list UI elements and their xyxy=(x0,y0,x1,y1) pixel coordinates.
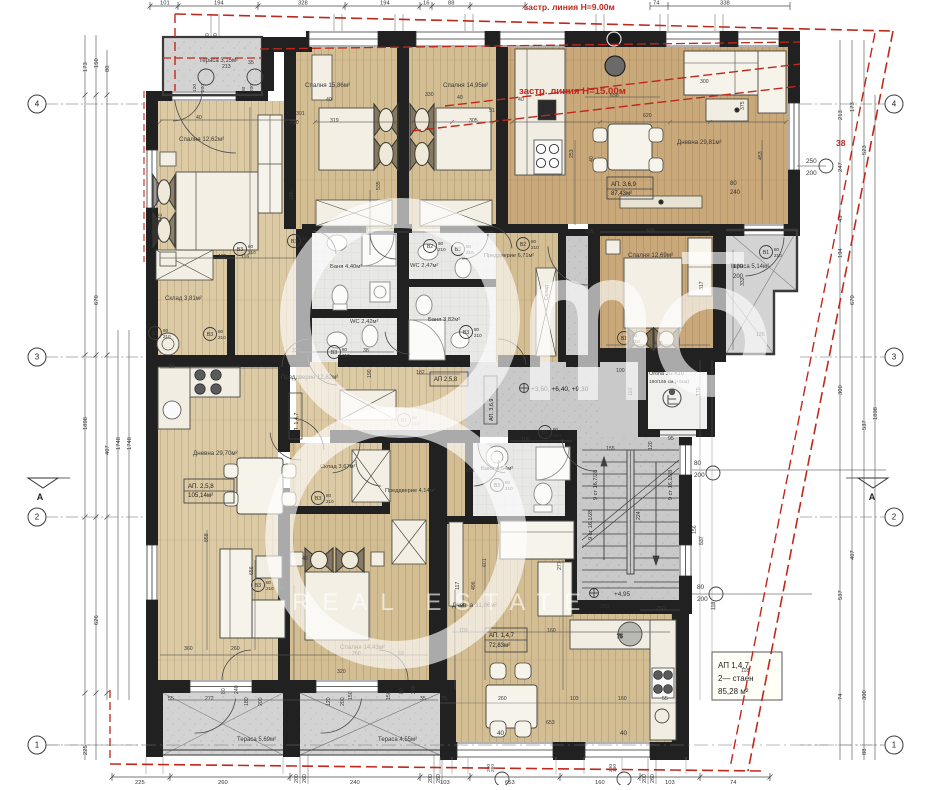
svg-text:4: 4 xyxy=(35,100,40,109)
svg-text:180: 180 xyxy=(244,697,250,706)
svg-text:51: 51 xyxy=(489,108,495,114)
svg-text:150: 150 xyxy=(94,58,100,68)
svg-text:80: 80 xyxy=(697,584,705,591)
svg-text:1: 1 xyxy=(35,741,40,750)
svg-text:35: 35 xyxy=(248,60,254,66)
svg-text:210: 210 xyxy=(474,333,482,338)
svg-text:80: 80 xyxy=(730,181,737,187)
svg-text:1898: 1898 xyxy=(873,407,879,420)
svg-text:Тераса 5,69м²: Тераса 5,69м² xyxy=(237,737,276,743)
svg-text:200: 200 xyxy=(694,472,705,479)
svg-text:40: 40 xyxy=(620,730,628,737)
svg-text:застр. линия Н=9.00м: застр. линия Н=9.00м xyxy=(524,2,615,12)
svg-text:95: 95 xyxy=(668,436,674,442)
svg-text:В1: В1 xyxy=(542,430,548,436)
svg-text:200: 200 xyxy=(258,697,264,706)
svg-text:150: 150 xyxy=(386,691,392,700)
svg-text:Тераса 5,14м²: Тераса 5,14м² xyxy=(730,264,769,270)
svg-text:260: 260 xyxy=(302,774,308,783)
svg-text:160: 160 xyxy=(595,780,605,785)
svg-text:200: 200 xyxy=(249,84,255,92)
svg-text:210: 210 xyxy=(531,245,539,250)
svg-text:+4,95: +4,95 xyxy=(614,591,631,598)
svg-text:WC 2,47м²: WC 2,47м² xyxy=(410,263,439,269)
svg-text:195: 195 xyxy=(585,229,594,235)
svg-text:75: 75 xyxy=(617,634,623,640)
svg-text:REAL ESTATE: REAL ESTATE xyxy=(292,589,593,616)
svg-text:80: 80 xyxy=(399,688,405,694)
svg-text:240: 240 xyxy=(730,190,741,196)
svg-text:300: 300 xyxy=(838,385,844,395)
svg-text:537: 537 xyxy=(699,536,705,545)
svg-text:80: 80 xyxy=(163,328,169,333)
svg-text:173: 173 xyxy=(83,62,89,72)
svg-text:80: 80 xyxy=(342,347,348,352)
svg-text:Тераса 3,15м²: Тераса 3,15м² xyxy=(199,58,238,64)
svg-text:85,28 м²: 85,28 м² xyxy=(718,687,749,696)
svg-text:2: 2 xyxy=(35,513,40,522)
svg-text:3: 3 xyxy=(35,353,40,362)
svg-text:Спалня 14,95м²: Спалня 14,95м² xyxy=(443,82,488,89)
svg-text:277: 277 xyxy=(557,561,563,570)
svg-text:260: 260 xyxy=(498,696,507,702)
svg-text:Дневна 29,70м²: Дневна 29,70м² xyxy=(193,450,238,457)
svg-text:В3: В3 xyxy=(331,350,337,356)
svg-text:301: 301 xyxy=(296,111,305,117)
svg-text:200: 200 xyxy=(200,84,206,92)
svg-text:240: 240 xyxy=(234,685,240,694)
svg-text:80: 80 xyxy=(326,493,332,498)
svg-text:В3: В3 xyxy=(255,583,261,589)
svg-text:155: 155 xyxy=(606,446,615,452)
svg-text:225: 225 xyxy=(135,780,145,785)
svg-text:160: 160 xyxy=(547,628,556,634)
svg-text:453: 453 xyxy=(758,151,764,160)
svg-text:9 ст 16,1/28: 9 ст 16,1/28 xyxy=(668,470,674,500)
svg-text:88: 88 xyxy=(448,1,454,7)
svg-text:200: 200 xyxy=(697,596,708,603)
svg-text:105,14м²: 105,14м² xyxy=(188,492,213,499)
svg-text:305: 305 xyxy=(469,118,478,124)
svg-text:АП. 1,4,7: АП. 1,4,7 xyxy=(489,633,515,639)
svg-text:338: 338 xyxy=(720,1,730,7)
svg-text:407: 407 xyxy=(850,550,856,560)
svg-text:101: 101 xyxy=(160,1,170,7)
svg-text:80: 80 xyxy=(169,364,175,370)
svg-text:210: 210 xyxy=(266,586,274,591)
svg-text:АП. 3,6,9: АП. 3,6,9 xyxy=(611,182,637,188)
svg-text:523: 523 xyxy=(862,145,868,155)
svg-text:Спалня 12,62м²: Спалня 12,62м² xyxy=(179,136,224,143)
svg-text:210: 210 xyxy=(342,353,350,358)
svg-text:260: 260 xyxy=(218,780,228,785)
svg-text:80: 80 xyxy=(531,239,537,244)
svg-text:120: 120 xyxy=(326,697,332,706)
svg-text:272: 272 xyxy=(205,696,214,702)
svg-text:Преддверие 4,14м²: Преддверие 4,14м² xyxy=(385,488,435,494)
svg-text:200: 200 xyxy=(428,774,434,783)
svg-text:213: 213 xyxy=(222,64,231,70)
svg-text:210: 210 xyxy=(326,499,334,504)
svg-text:35: 35 xyxy=(420,696,426,702)
svg-text:330: 330 xyxy=(425,92,434,98)
svg-text:16: 16 xyxy=(423,1,429,7)
svg-text:Баня 3,82м²: Баня 3,82м² xyxy=(428,317,460,323)
svg-text:116: 116 xyxy=(241,254,249,260)
svg-text:Дневна 29,81м²: Дневна 29,81м² xyxy=(677,139,722,146)
svg-text:74: 74 xyxy=(838,693,844,700)
svg-text:74: 74 xyxy=(730,780,737,785)
svg-text:653: 653 xyxy=(546,720,555,726)
svg-text:1748: 1748 xyxy=(116,437,122,450)
svg-text:40: 40 xyxy=(326,97,332,103)
svg-text:194: 194 xyxy=(838,248,844,258)
svg-text:300: 300 xyxy=(862,690,868,700)
svg-text:АП. 1,4,7: АП. 1,4,7 xyxy=(294,413,300,435)
svg-text:В3: В3 xyxy=(152,331,158,337)
svg-text:87,43м²: 87,43м² xyxy=(611,191,632,197)
svg-text:80: 80 xyxy=(241,86,247,92)
svg-text:319: 319 xyxy=(330,118,339,124)
svg-text:3: 3 xyxy=(892,353,897,362)
svg-text:670: 670 xyxy=(850,295,856,305)
svg-text:200: 200 xyxy=(294,774,300,783)
svg-text:1898: 1898 xyxy=(83,417,89,430)
svg-text:Тераса 4,55м²: Тераса 4,55м² xyxy=(378,737,417,743)
svg-text:240: 240 xyxy=(411,685,417,694)
svg-text:210: 210 xyxy=(438,247,446,252)
svg-text:210: 210 xyxy=(553,433,561,438)
svg-text:В3: В3 xyxy=(315,496,321,502)
svg-text:253: 253 xyxy=(569,149,575,158)
svg-text:80: 80 xyxy=(438,241,444,246)
svg-text:2: 2 xyxy=(892,513,897,522)
svg-text:620: 620 xyxy=(643,113,652,119)
svg-text:80: 80 xyxy=(221,688,227,694)
svg-text:670: 670 xyxy=(94,295,100,305)
svg-text:40: 40 xyxy=(518,97,524,103)
svg-text:80: 80 xyxy=(105,66,111,72)
svg-text:200: 200 xyxy=(806,170,817,177)
svg-text:1: 1 xyxy=(892,741,897,750)
svg-text:80: 80 xyxy=(266,580,272,585)
svg-text:46: 46 xyxy=(302,556,308,562)
svg-text:200: 200 xyxy=(642,774,648,783)
svg-text:260: 260 xyxy=(436,774,442,783)
svg-text:88: 88 xyxy=(862,749,868,755)
svg-text:537: 537 xyxy=(862,420,868,430)
svg-text:150: 150 xyxy=(348,691,354,700)
svg-text:250: 250 xyxy=(600,604,609,610)
svg-text:В1: В1 xyxy=(763,250,769,256)
svg-text:200: 200 xyxy=(340,697,346,706)
svg-text:407: 407 xyxy=(105,445,111,455)
svg-text:55: 55 xyxy=(662,696,668,702)
svg-text:75: 75 xyxy=(441,696,447,702)
svg-text:80: 80 xyxy=(553,427,559,432)
svg-text:40: 40 xyxy=(457,95,463,101)
svg-text:80: 80 xyxy=(774,247,780,252)
svg-text:186: 186 xyxy=(289,191,295,200)
svg-text:55: 55 xyxy=(168,696,174,702)
svg-text:В2: В2 xyxy=(520,242,526,248)
svg-text:250: 250 xyxy=(806,158,817,165)
svg-text:194: 194 xyxy=(380,1,390,7)
svg-text:100: 100 xyxy=(521,437,530,443)
svg-text:120: 120 xyxy=(648,441,654,450)
svg-text:440: 440 xyxy=(158,213,164,222)
svg-text:В2: В2 xyxy=(427,244,433,250)
svg-text:626: 626 xyxy=(94,615,100,625)
svg-text:1748: 1748 xyxy=(127,437,133,450)
svg-text:74: 74 xyxy=(653,1,660,7)
svg-text:100: 100 xyxy=(616,368,625,374)
svg-text:360: 360 xyxy=(184,646,193,652)
svg-text:80: 80 xyxy=(218,329,224,334)
svg-text:80: 80 xyxy=(248,244,254,249)
svg-text:В3: В3 xyxy=(207,332,213,338)
svg-text:38: 38 xyxy=(836,138,846,148)
svg-text:В3: В3 xyxy=(291,239,297,245)
svg-text:332: 332 xyxy=(740,277,746,286)
svg-text:210: 210 xyxy=(218,335,226,340)
svg-text:Склад 3,67м²: Склад 3,67м² xyxy=(320,464,356,470)
svg-text:72,83м²: 72,83м² xyxy=(489,643,510,649)
svg-text:Баня 4,40м²: Баня 4,40м² xyxy=(330,264,362,270)
svg-text:190: 190 xyxy=(367,369,373,378)
svg-text:194: 194 xyxy=(214,1,224,7)
svg-text:250: 250 xyxy=(656,606,665,612)
svg-text:328: 328 xyxy=(298,1,308,7)
svg-text:213: 213 xyxy=(838,110,844,120)
svg-text:224: 224 xyxy=(636,511,642,520)
svg-text:247: 247 xyxy=(838,162,844,172)
svg-text:535: 535 xyxy=(376,181,382,190)
svg-text:160: 160 xyxy=(618,696,627,702)
svg-text:Спалня 15,86м²: Спалня 15,86м² xyxy=(305,82,350,89)
svg-text:185: 185 xyxy=(218,254,227,260)
svg-text:80: 80 xyxy=(474,327,480,332)
svg-text:120: 120 xyxy=(192,84,198,92)
svg-text:260: 260 xyxy=(231,646,240,652)
svg-text:182: 182 xyxy=(416,370,425,376)
svg-text:260: 260 xyxy=(650,774,656,783)
svg-text:300: 300 xyxy=(700,79,709,85)
svg-text:210: 210 xyxy=(774,253,782,258)
svg-text:156: 156 xyxy=(692,525,698,534)
svg-text:405: 405 xyxy=(646,228,655,234)
svg-text:9 ст 16,7/28: 9 ст 16,7/28 xyxy=(593,470,599,500)
svg-text:200: 200 xyxy=(608,764,614,772)
svg-text:АП 2,5,8: АП 2,5,8 xyxy=(434,377,458,383)
svg-text:225: 225 xyxy=(83,745,89,755)
svg-text:537: 537 xyxy=(838,590,844,600)
svg-text:40: 40 xyxy=(497,730,505,737)
svg-text:40: 40 xyxy=(589,156,595,162)
svg-text:В3: В3 xyxy=(463,330,469,336)
svg-text:103: 103 xyxy=(665,780,675,785)
svg-text:A: A xyxy=(37,492,44,502)
svg-text:Склад 3,81м²: Склад 3,81м² xyxy=(165,296,202,302)
svg-text:210: 210 xyxy=(163,334,171,339)
svg-text:656: 656 xyxy=(249,566,255,575)
svg-text:118: 118 xyxy=(711,602,717,610)
svg-text:80: 80 xyxy=(694,460,702,467)
svg-text:240: 240 xyxy=(350,780,360,785)
svg-text:WC 2,42м²: WC 2,42м² xyxy=(350,319,379,325)
svg-text:103: 103 xyxy=(570,696,579,702)
svg-text:4: 4 xyxy=(892,100,897,109)
svg-text:АП. 2,5,8: АП. 2,5,8 xyxy=(188,483,214,490)
svg-text:375: 375 xyxy=(740,101,746,110)
svg-text:Спалня 12,69м²: Спалня 12,69м² xyxy=(628,252,673,259)
svg-text:застр. линия Н=15.00м: застр. линия Н=15.00м xyxy=(519,86,626,97)
svg-text:9 ст 16,1/28: 9 ст 16,1/28 xyxy=(588,510,594,540)
svg-text:A: A xyxy=(869,492,876,502)
svg-text:АП. 3,6,9: АП. 3,6,9 xyxy=(489,399,495,421)
svg-text:320: 320 xyxy=(337,669,346,675)
svg-text:В3: В3 xyxy=(237,247,243,253)
svg-text:38: 38 xyxy=(363,348,369,354)
svg-text:80: 80 xyxy=(302,236,308,241)
